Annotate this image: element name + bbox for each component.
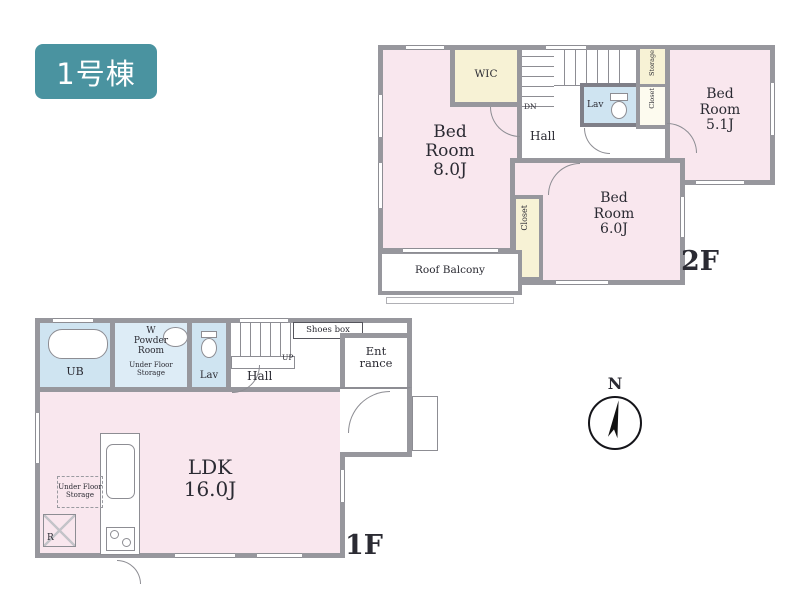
entrance-step <box>412 396 438 451</box>
floor-label-1f: 1F <box>345 530 383 561</box>
stairs-up-label: UP <box>282 354 293 362</box>
stairs-dn-label: DN <box>524 103 537 111</box>
stove-icon <box>106 527 135 551</box>
compass: N <box>585 374 645 462</box>
refrigerator-space: R <box>43 514 76 547</box>
room-label-under-floor-storage-powder: Under Floor Storage <box>114 362 188 378</box>
door-arc <box>117 560 141 584</box>
toilet-icon <box>201 331 217 338</box>
room-label-bedroom-6j: Bed Room 6.0J <box>550 191 678 238</box>
stair-treads-icon <box>554 50 626 86</box>
room-label: Lav <box>587 100 603 110</box>
floor-label-2f: 2F <box>681 246 719 277</box>
room-ub <box>35 318 115 392</box>
room-label-ldk: LDK 16.0J <box>80 456 340 501</box>
room-label-bedroom-5-1j: Bed Room 5.1J <box>670 87 770 134</box>
refrigerator-label: R <box>47 533 54 543</box>
compass-north-label: N <box>585 374 645 393</box>
closet-hall: Closet <box>640 87 668 125</box>
building-number-badge: 1号棟 <box>35 44 157 99</box>
window-mark <box>257 553 302 558</box>
room-label-hall-1f: Hall <box>247 370 272 383</box>
window-mark <box>406 45 444 50</box>
burner-icon <box>122 538 131 547</box>
window-mark <box>340 470 345 502</box>
toilet-icon <box>610 93 628 101</box>
stair-treads-icon <box>231 323 295 357</box>
room-label-wic: WIC <box>450 69 522 81</box>
window-mark <box>35 413 40 463</box>
sliding-door-mark <box>403 248 498 253</box>
window-mark <box>53 318 93 323</box>
window-mark <box>240 318 288 323</box>
window-mark <box>556 280 608 285</box>
toilet-icon <box>201 338 217 358</box>
window-mark <box>680 197 685 237</box>
room-label-roof-balcony: Roof Balcony <box>388 265 512 277</box>
room-label: Storage <box>649 50 656 76</box>
room-label-powder: W Powder Room <box>115 326 187 356</box>
room-label-entrance: Ent rance <box>340 346 412 369</box>
window-mark <box>175 553 235 558</box>
room-label-hall-2f: Hall <box>530 130 555 143</box>
room-label: Closet <box>649 88 656 109</box>
floorplan-page: { "badge": { "label": "1号棟" }, "compass"… <box>0 0 800 600</box>
window-mark <box>770 83 775 135</box>
bathtub-icon <box>48 329 108 359</box>
burner-icon <box>110 530 119 539</box>
room-label-bedroom-8j: Bed Room 8.0J <box>383 123 517 180</box>
closet-storage: Storage <box>640 49 668 87</box>
room-label: Closet <box>521 205 530 231</box>
toilet-icon <box>611 101 627 119</box>
room-lav-2f: Lav <box>580 83 640 127</box>
window-mark <box>546 45 586 50</box>
room-label-ub: UB <box>45 366 105 378</box>
window-mark <box>696 180 744 185</box>
room-label-lav-1f: Lav <box>187 370 231 381</box>
balcony-edge <box>386 297 514 304</box>
